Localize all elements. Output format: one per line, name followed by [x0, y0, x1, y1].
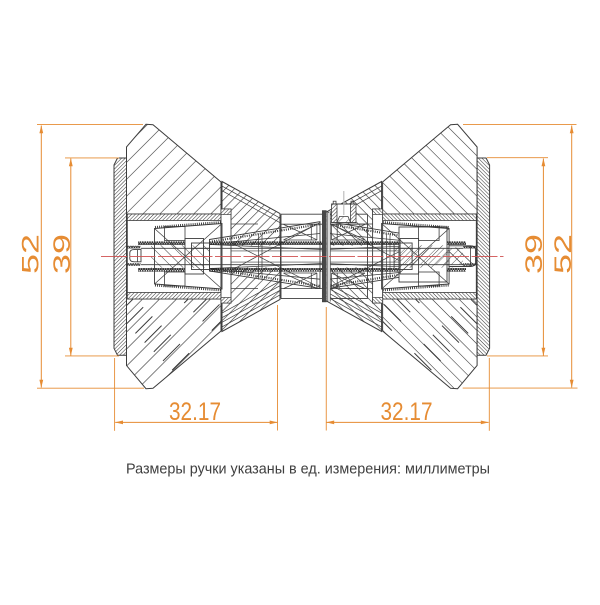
- svg-text:52: 52: [17, 234, 44, 274]
- svg-text:52: 52: [550, 234, 577, 274]
- svg-text:Размеры ручки указаны в ед. из: Размеры ручки указаны в ед. измерения: м…: [126, 461, 490, 478]
- svg-text:32.17: 32.17: [381, 398, 433, 426]
- svg-text:32.17: 32.17: [169, 398, 221, 426]
- svg-text:39: 39: [521, 234, 548, 274]
- svg-text:39: 39: [49, 234, 76, 274]
